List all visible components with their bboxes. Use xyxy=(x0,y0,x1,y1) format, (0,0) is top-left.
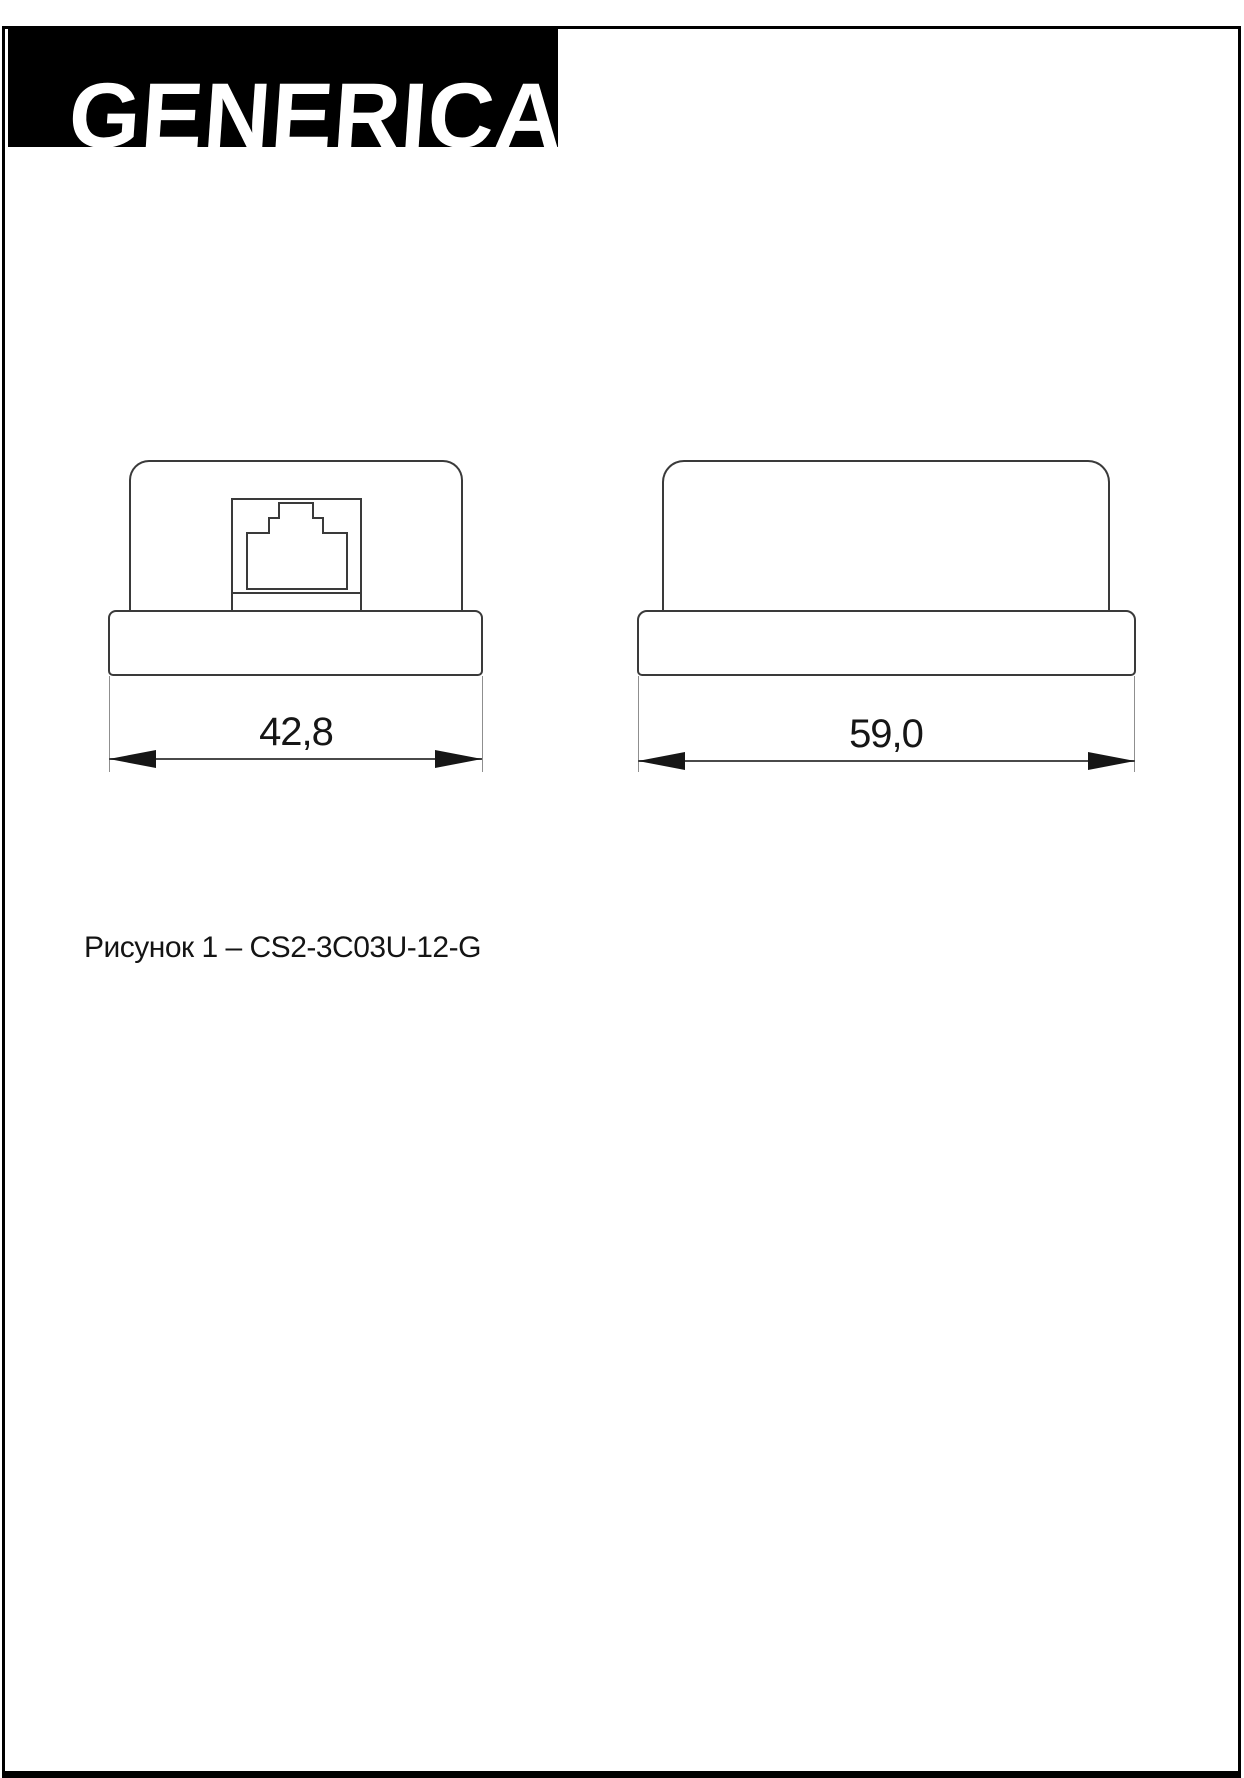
extension-line xyxy=(482,676,483,772)
side-view-body-outline xyxy=(662,460,1110,610)
side-view-base-outline xyxy=(637,610,1136,676)
dimension-line xyxy=(638,760,1135,762)
rj45-socket-outline xyxy=(231,498,362,610)
brand-logo: GENERICA xyxy=(8,28,558,147)
figure-caption: Рисунок 1 – CS2-3C03U-12-G xyxy=(84,931,481,965)
page-border-frame xyxy=(2,26,1241,1778)
datasheet-page: GENERICA 42,8 59,0 Рисунок 1 – CS2-3C03U… xyxy=(0,0,1244,1778)
dimension-line xyxy=(109,758,482,760)
front-view-base-outline xyxy=(108,610,483,676)
front-view-width-dimension-label: 42,8 xyxy=(129,709,463,755)
brand-logo-text: GENERICA xyxy=(66,70,566,162)
side-view-width-dimension-label: 59,0 xyxy=(662,711,1110,757)
